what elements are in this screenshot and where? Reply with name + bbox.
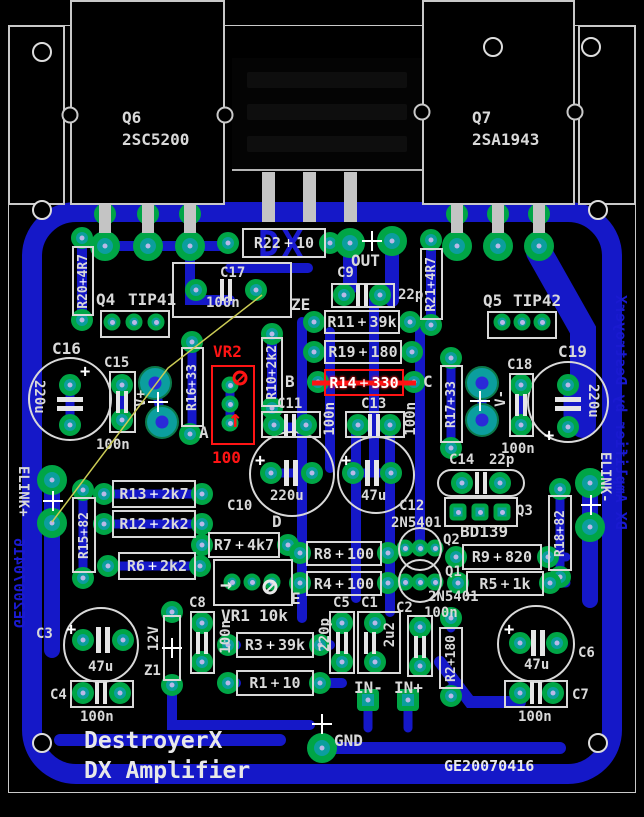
origin-cross bbox=[581, 495, 601, 515]
pad bbox=[524, 231, 554, 261]
mounting-hole bbox=[483, 37, 503, 57]
capacitor-symbol bbox=[363, 632, 377, 654]
value-label: 2SC5200 bbox=[122, 132, 189, 148]
net-label-d: D bbox=[272, 514, 282, 530]
pad bbox=[59, 414, 81, 436]
faint-print-line bbox=[247, 136, 407, 152]
pad bbox=[483, 231, 513, 261]
pad bbox=[301, 462, 323, 484]
value-label: 10k bbox=[259, 608, 288, 624]
net-label-ze: ZE bbox=[291, 297, 310, 313]
origin-cross bbox=[148, 392, 168, 412]
value-label: 22p bbox=[398, 288, 423, 302]
value-label: 100n bbox=[323, 402, 337, 439]
ref-label: C4 bbox=[50, 688, 67, 702]
value-label: 22p bbox=[489, 453, 514, 467]
block-bottom-line bbox=[232, 169, 422, 171]
component-R1: R110 bbox=[236, 670, 314, 696]
polarity-plus bbox=[341, 451, 351, 471]
origin-cross bbox=[362, 231, 382, 251]
component-R16: R1633 bbox=[181, 347, 204, 427]
value-label: 2u2 bbox=[383, 622, 397, 650]
capacitor-symbol bbox=[115, 391, 129, 413]
board-subtitle: DX Amplifier bbox=[84, 758, 250, 784]
value-label: 47u bbox=[361, 489, 386, 503]
net-label-elink-plus: ELINK+ bbox=[16, 466, 30, 520]
polarity-plus bbox=[504, 620, 514, 640]
ref-label: C14 bbox=[449, 453, 474, 467]
component-R20: R204R7 bbox=[72, 246, 94, 316]
ref-label: C6 bbox=[578, 646, 595, 660]
ref-label: C7 bbox=[572, 688, 589, 702]
value-label: 220p bbox=[318, 618, 332, 655]
mounting-hole bbox=[588, 733, 608, 753]
mounting-hole bbox=[32, 733, 52, 753]
pad bbox=[59, 374, 81, 396]
pad-ground bbox=[307, 733, 337, 763]
value-label: 220u bbox=[270, 489, 304, 503]
mounting-hole bbox=[588, 200, 608, 220]
copper-right-edge-text: DX Amplifier by DestroyerX bbox=[612, 295, 630, 775]
ref-label: C1 bbox=[361, 596, 378, 610]
pad bbox=[112, 629, 134, 651]
value-label: 100 bbox=[212, 450, 241, 466]
center-device-block bbox=[232, 58, 422, 170]
value-label: 47u bbox=[88, 660, 113, 674]
component-R19: R19180 bbox=[324, 340, 402, 364]
value-label: 100n bbox=[219, 620, 233, 657]
net-label-b: B bbox=[285, 374, 295, 390]
pad bbox=[90, 231, 120, 261]
capacitor-symbol bbox=[355, 284, 369, 306]
polarity-plus bbox=[255, 451, 265, 471]
component-R3: R339k bbox=[236, 632, 314, 658]
value-label: TIP42 bbox=[513, 293, 561, 309]
capacitor-symbol bbox=[195, 632, 209, 654]
component-R21: R214R7 bbox=[420, 248, 443, 320]
net-label-e: E bbox=[291, 591, 301, 607]
ref-label: Q5 bbox=[483, 293, 502, 309]
ref-label: C12 bbox=[399, 499, 424, 513]
ref-label: C17 bbox=[220, 266, 245, 280]
net-label-vminus: V- bbox=[494, 390, 508, 410]
trimmer-screw-icon bbox=[263, 580, 278, 595]
pad bbox=[217, 232, 239, 254]
ref-label: C16 bbox=[52, 341, 81, 357]
pad bbox=[97, 555, 119, 577]
pad bbox=[303, 311, 325, 333]
component-R12: R122k2 bbox=[112, 510, 196, 538]
component-R11: R1139k bbox=[324, 310, 400, 334]
pad bbox=[380, 462, 402, 484]
polarity-plus bbox=[80, 362, 90, 382]
package-notch bbox=[567, 104, 584, 121]
value-label: 220u bbox=[586, 384, 600, 421]
pad bbox=[557, 374, 579, 396]
mounting-hole bbox=[32, 200, 52, 220]
package-notch bbox=[62, 107, 79, 124]
pad bbox=[37, 508, 67, 538]
component-R8: R8100 bbox=[306, 541, 382, 566]
pad bbox=[546, 632, 568, 654]
pad bbox=[442, 231, 472, 261]
net-label-out: OUT bbox=[351, 253, 380, 269]
pad bbox=[575, 512, 605, 542]
capacitor-symbol bbox=[530, 630, 546, 656]
transistor-package-Q7: Q7 2SA1943 bbox=[422, 0, 575, 205]
value-label: 12V bbox=[147, 626, 161, 654]
component-R9: R9820 bbox=[462, 544, 542, 570]
ref-label: C11 bbox=[277, 397, 302, 411]
ref-label: Q3 bbox=[516, 504, 533, 518]
pcb-layout-image: DX GE20070416 DX Amplifier by DestroyerX… bbox=[0, 0, 644, 817]
pad bbox=[399, 311, 421, 333]
ref-label: C13 bbox=[361, 397, 386, 411]
component-Q5 bbox=[487, 311, 557, 339]
net-label-in-plus: IN+ bbox=[394, 680, 423, 696]
ref-label: Q4 bbox=[96, 292, 115, 308]
net-label-gnd: GND bbox=[334, 733, 363, 749]
wiper-arrow-icon bbox=[220, 572, 232, 596]
component-R2: R2180 bbox=[439, 627, 463, 689]
component-R22: R2210 bbox=[242, 228, 326, 258]
ref-label: Q6 bbox=[122, 110, 141, 126]
capacitor-symbol bbox=[283, 460, 299, 486]
polarity-plus bbox=[66, 620, 76, 640]
ref-label: Q2 bbox=[443, 533, 460, 547]
value-label: 100n bbox=[80, 710, 114, 724]
ref-label: C2 bbox=[396, 601, 413, 615]
faint-print-line bbox=[247, 104, 407, 120]
value-label: 2N5401 bbox=[391, 516, 442, 530]
value-label: 220u bbox=[32, 380, 46, 417]
capacitor-symbol bbox=[555, 396, 581, 412]
net-label-in-minus: IN- bbox=[354, 680, 383, 696]
board-datecode: GE20070416 bbox=[444, 757, 534, 775]
capacitor-symbol bbox=[529, 682, 543, 704]
capacitor-symbol bbox=[94, 682, 108, 704]
value-label: 100n bbox=[206, 296, 240, 310]
ref-label: Q7 bbox=[472, 110, 491, 126]
ref-label: VR2 bbox=[213, 344, 242, 360]
value-label: 100n bbox=[518, 710, 552, 724]
value-label: 2N5401 bbox=[428, 590, 479, 604]
capacitor-symbol bbox=[95, 627, 111, 653]
origin-cross bbox=[43, 491, 63, 511]
ref-label: C19 bbox=[558, 344, 587, 360]
trimmer-screw-icon bbox=[233, 371, 248, 386]
transistor-package-Q6: Q6 2SC5200 bbox=[70, 0, 225, 205]
component-R14-highlighted: R14330 bbox=[324, 369, 404, 396]
net-label-a: A bbox=[199, 425, 209, 441]
component-R13: R132k7 bbox=[112, 480, 196, 508]
capacitor-symbol bbox=[474, 472, 488, 494]
component-R6: R62k2 bbox=[118, 552, 196, 580]
pad bbox=[175, 231, 205, 261]
ref-label: C18 bbox=[507, 358, 532, 372]
pad bbox=[133, 231, 163, 261]
polarity-plus bbox=[544, 426, 554, 446]
capacitor-symbol bbox=[335, 632, 349, 654]
board-title: DestroyerX bbox=[84, 728, 222, 754]
component-R17: R1733 bbox=[440, 365, 463, 443]
capacitor-symbol bbox=[283, 414, 297, 436]
ref-label: C15 bbox=[104, 356, 129, 370]
ref-label: Z1 bbox=[144, 664, 161, 678]
ref-label: C10 bbox=[227, 499, 252, 513]
ref-label: C3 bbox=[36, 627, 53, 641]
component-leg bbox=[303, 172, 316, 222]
copper-left-edge-text: GE20070416 bbox=[10, 538, 28, 708]
capacitor-symbol bbox=[514, 394, 528, 416]
capacitor-symbol bbox=[364, 460, 380, 486]
ref-label: C8 bbox=[189, 596, 206, 610]
component-R7: R74k7 bbox=[208, 532, 280, 558]
pad bbox=[557, 416, 579, 438]
origin-cross bbox=[470, 391, 490, 411]
capacitor-symbol bbox=[57, 396, 83, 412]
value-label: TIP41 bbox=[128, 292, 176, 308]
mounting-hole bbox=[32, 42, 52, 62]
ref-label: Q1 bbox=[445, 565, 462, 579]
value-label: 2SA1943 bbox=[472, 132, 539, 148]
capacitor-symbol bbox=[367, 414, 381, 436]
value-label: 100n bbox=[96, 438, 130, 452]
value-label: 47u bbox=[524, 658, 549, 672]
faint-print-line bbox=[247, 72, 407, 88]
value-label: 100n bbox=[404, 402, 418, 439]
ref-label: C5 bbox=[333, 596, 350, 610]
package-notch bbox=[217, 107, 234, 124]
mounting-hole bbox=[581, 37, 601, 57]
origin-cross bbox=[162, 638, 182, 658]
component-leg bbox=[344, 172, 357, 222]
capacitor-symbol bbox=[413, 636, 427, 658]
ref-label: C9 bbox=[337, 266, 354, 280]
component-R15: R1582 bbox=[72, 497, 96, 573]
pad bbox=[401, 341, 423, 363]
component-R18: R1882 bbox=[548, 495, 572, 571]
origin-cross bbox=[312, 714, 332, 734]
component-R4: R4100 bbox=[306, 571, 382, 596]
pad bbox=[303, 341, 325, 363]
package-notch bbox=[414, 104, 431, 121]
value-label: BD139 bbox=[460, 524, 508, 540]
wiper-arrow-icon bbox=[228, 405, 242, 433]
value-label: 100n bbox=[424, 606, 458, 620]
component-leg bbox=[262, 172, 275, 222]
net-label-vplus: V+ bbox=[134, 390, 148, 410]
component-Q4 bbox=[100, 310, 170, 338]
net-label-c: C bbox=[423, 374, 433, 390]
